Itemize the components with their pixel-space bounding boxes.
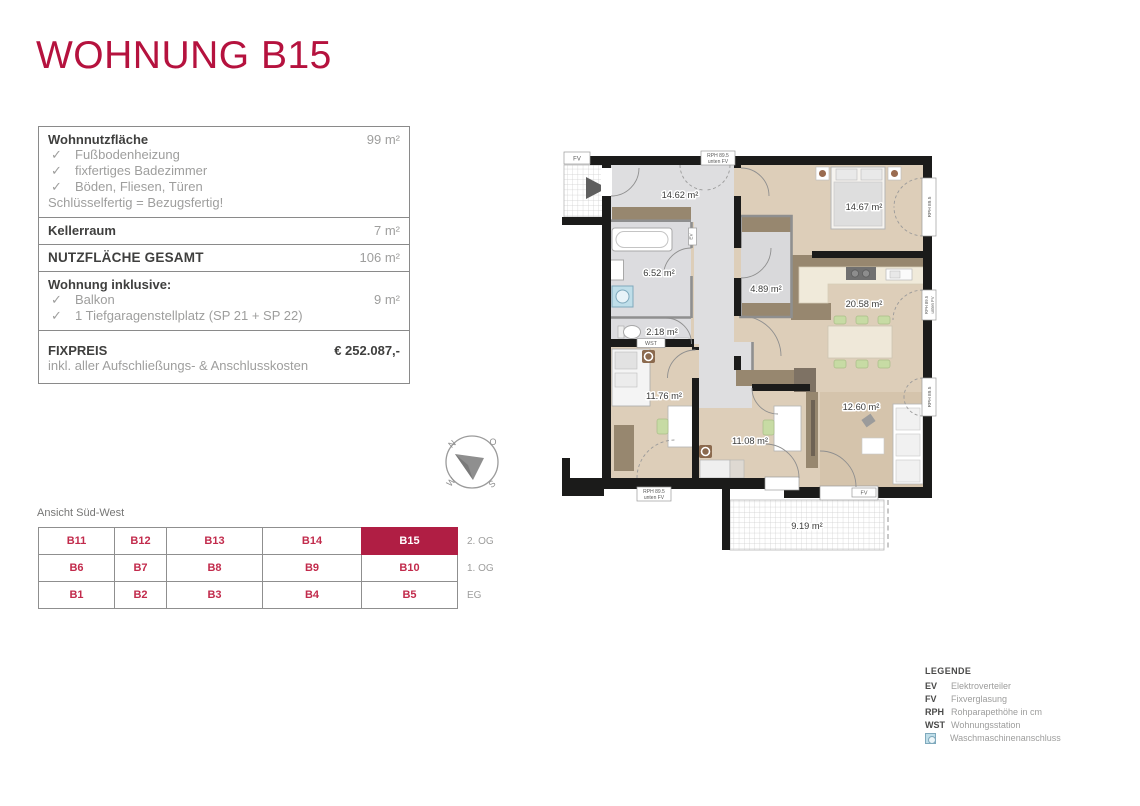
info-row-living-area: Wohnnutzfläche 99 m² ✓ Fußbodenheizung ✓…: [38, 126, 410, 218]
unit-cell-b12[interactable]: B12: [114, 527, 167, 555]
bathtub-icon: [612, 228, 672, 251]
fixed-price-label: FIXPREIS: [48, 343, 107, 358]
floor-label-2og: 2. OG: [458, 527, 513, 555]
check-icon: ✓: [48, 163, 75, 179]
legend-desc-fv: Fixverglasung: [951, 693, 1007, 706]
compass-south: S: [487, 478, 498, 490]
unit-cell-b6[interactable]: B6: [38, 554, 115, 582]
unten-fv-label: unten FV: [708, 159, 729, 165]
washing-machine-icon: [925, 733, 936, 744]
compass-north: N: [446, 438, 458, 450]
apartment-info-table: Wohnnutzfläche 99 m² ✓ Fußbodenheizung ✓…: [38, 126, 410, 384]
living-area-label: Wohnnutzfläche: [48, 132, 148, 147]
cellar-value: 7 m²: [374, 223, 400, 238]
legend-desc-rph: Rohparapethöhe in cm: [951, 706, 1042, 719]
compass-east: O: [489, 437, 496, 447]
check-icon: ✓: [48, 147, 75, 163]
check-icon: ✓: [48, 292, 75, 308]
compass-rose: N O W S: [438, 428, 506, 501]
room-label-hallway: 14.62 m²: [662, 190, 699, 200]
unit-cell-b11[interactable]: B11: [38, 527, 115, 555]
unit-cell-b2[interactable]: B2: [114, 581, 167, 609]
floor-plan: FV RPH 89.5 unten FV WST RPH 89.5 unten …: [562, 148, 942, 557]
dining-table-icon: [828, 316, 892, 368]
included-label: Wohnung inklusive:: [48, 277, 171, 292]
unit-row-1og: B6 B7 B8 B9 B10 1. OG: [38, 554, 513, 582]
page-title: WOHNUNG B15: [36, 34, 332, 78]
sink-icon: [611, 260, 624, 280]
legend-entry: Waschmaschinenanschluss: [925, 732, 1061, 745]
unit-row-2og: B11 B12 B13 B14 B15 2. OG: [38, 527, 513, 555]
room-label-lounge: 12.60 m²: [843, 402, 880, 412]
legend-entry: FV Fixverglasung: [925, 693, 1061, 706]
feature-label: Böden, Fliesen, Türen: [75, 179, 400, 195]
washing-machine-icon: [612, 286, 633, 307]
unit-cell-b1[interactable]: B1: [38, 581, 115, 609]
feature-item: ✓ Böden, Fliesen, Türen: [48, 179, 400, 195]
feature-item: ✓ Fußbodenheizung: [48, 147, 400, 163]
fv-label: FV: [573, 157, 581, 163]
legend-entry: RPH Rohparapethöhe in cm: [925, 706, 1061, 719]
rph-label: RPH 89.5: [924, 295, 929, 314]
info-row-price: FIXPREIS € 252.087,- inkl. aller Aufschl…: [38, 330, 410, 384]
room-label-bathroom: 6.52 m²: [643, 268, 675, 278]
legend-abbr-fv: FV: [925, 693, 951, 706]
living-area-value: 99 m²: [367, 132, 400, 147]
unit-cell-b3[interactable]: B3: [166, 581, 263, 609]
unten-fv-label: unten FV: [644, 495, 665, 501]
info-row-included: Wohnung inklusive: ✓ Balkon 9 m² ✓ 1 Tie…: [38, 271, 410, 331]
feature-item: ✓ fixfertiges Badezimmer: [48, 163, 400, 179]
legend-title: LEGENDE: [925, 665, 1061, 678]
price-note: inkl. aller Aufschließungs- & Anschlussk…: [48, 358, 400, 374]
floor-label-1og: 1. OG: [458, 554, 513, 582]
included-balcony-value: 9 m²: [374, 292, 400, 308]
legend-desc-washing: Waschmaschinenanschluss: [950, 732, 1061, 745]
included-item: ✓ Balkon 9 m²: [48, 292, 400, 308]
unit-cell-b5[interactable]: B5: [361, 581, 458, 609]
room-label-living: 20.58 m²: [846, 299, 883, 309]
unit-cell-b13[interactable]: B13: [166, 527, 263, 555]
unten-fv-label: unten FV: [930, 296, 935, 313]
room-label-balcony: 9.19 m²: [791, 521, 823, 531]
room-label-storage: 4.89 m²: [750, 284, 782, 294]
floor-label-eg: EG: [458, 581, 513, 609]
hall-wardrobe: [612, 207, 691, 220]
included-item: ✓ 1 Tiefgaragenstellplatz (SP 21 + SP 22…: [48, 308, 400, 324]
check-icon: ✓: [48, 308, 75, 324]
included-balcony-label: Balkon: [75, 292, 374, 308]
room-label-bedroom: 14.67 m²: [846, 202, 883, 212]
feature-label: Fußbodenheizung: [75, 147, 400, 163]
included-garage-label: 1 Tiefgaragenstellplatz (SP 21 + SP 22): [75, 308, 400, 324]
unit-cell-b10[interactable]: B10: [361, 554, 458, 582]
unit-cell-b9[interactable]: B9: [262, 554, 362, 582]
legend-entry: WST Wohnungsstation: [925, 719, 1061, 732]
total-area-label: NUTZFLÄCHE GESAMT: [48, 250, 204, 265]
stove-icon: [846, 267, 876, 280]
unit-cell-b15-selected[interactable]: B15: [361, 527, 458, 555]
check-icon: ✓: [48, 179, 75, 195]
cellar-label: Kellerraum: [48, 223, 116, 238]
legend-desc-ev: Elektroverteiler: [951, 680, 1011, 693]
legend: LEGENDE EV Elektroverteiler FV Fixvergla…: [925, 665, 1061, 745]
legend-desc-wst: Wohnungsstation: [951, 719, 1020, 732]
legend-abbr-ev: EV: [925, 680, 951, 693]
legend-abbr-rph: RPH: [925, 706, 951, 719]
unit-cell-b7[interactable]: B7: [114, 554, 167, 582]
info-row-cellar: Kellerraum 7 m²: [38, 217, 410, 245]
ev-label: EV: [689, 233, 694, 240]
legend-abbr-wst: WST: [925, 719, 951, 732]
rph-label: RPH 89.5: [927, 196, 933, 217]
legend-entry: EV Elektroverteiler: [925, 680, 1061, 693]
unit-cell-b14[interactable]: B14: [262, 527, 362, 555]
view-caption: Ansicht Süd-West: [37, 507, 124, 519]
unit-cell-b4[interactable]: B4: [262, 581, 362, 609]
stairwell: [564, 165, 607, 217]
unit-cell-b8[interactable]: B8: [166, 554, 263, 582]
turnkey-note: Schlüsselfertig = Bezugsfertig!: [48, 195, 400, 211]
fixed-price-value: € 252.087,-: [334, 343, 400, 358]
compass-west: W: [444, 475, 457, 488]
brochure-page: WOHNUNG B15 Wohnnutzfläche 99 m² ✓ Fußbo…: [0, 0, 1140, 806]
unit-row-eg: B1 B2 B3 B4 B5 EG: [38, 581, 513, 609]
wst-label: WST: [645, 341, 658, 347]
total-area-value: 106 m²: [360, 250, 400, 265]
room-label-child-west: 11.76 m²: [646, 391, 682, 401]
feature-label: fixfertiges Badezimmer: [75, 163, 400, 179]
unit-selector-grid: B11 B12 B13 B14 B15 2. OG B6 B7 B8 B9 B1…: [38, 527, 513, 609]
fv-label: FV: [861, 491, 868, 497]
info-row-total-area: NUTZFLÄCHE GESAMT 106 m²: [38, 244, 410, 272]
rph-label: RPH 89.5: [927, 386, 933, 407]
room-label-child-middle: 11.08 m²: [732, 436, 768, 446]
room-label-wc: 2.18 m²: [646, 327, 678, 337]
